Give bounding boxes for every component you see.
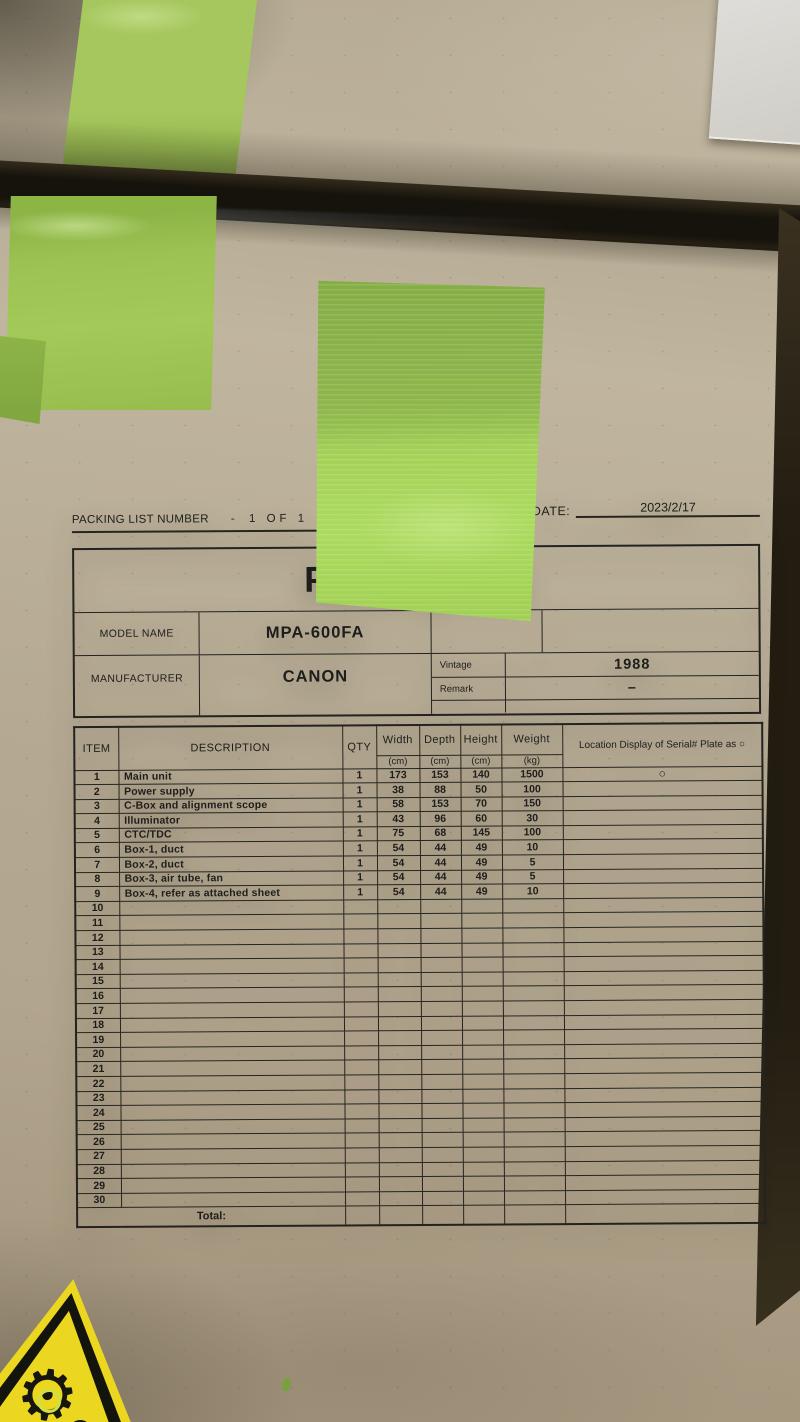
cell-depth: 44 [420, 855, 461, 870]
col-header-width: Width [376, 725, 419, 755]
cell-location [563, 780, 763, 796]
cell-width [378, 1074, 421, 1089]
header-row: ITEM DESCRIPTION QTY Width Depth Height … [74, 723, 762, 757]
col-header-location: Location Display of Serial# Plate as ○ [562, 723, 762, 767]
cell-location [564, 1072, 764, 1088]
cell-weight [502, 928, 563, 943]
cell-depth [421, 1074, 462, 1089]
unit-width: (cm) [376, 755, 419, 768]
remark-value: – [505, 676, 759, 700]
cell-location [565, 1131, 765, 1147]
cell-weight [503, 1103, 564, 1118]
cell-description: Box-2, duct [119, 856, 343, 872]
cell-width [377, 943, 420, 958]
cell-height [462, 1103, 503, 1118]
vintage-value: 1988 [505, 652, 759, 677]
cell-depth [421, 1016, 462, 1031]
cell-location [563, 868, 763, 884]
cell-item: 13 [75, 945, 119, 960]
cell-depth [421, 987, 462, 1002]
cell-depth [422, 1133, 463, 1148]
cell-depth [422, 1191, 463, 1206]
cell-width: 54 [377, 856, 420, 871]
cell-item: 19 [76, 1033, 120, 1048]
cell-depth [420, 943, 461, 958]
cell-location [563, 941, 763, 957]
cell-item: 4 [75, 814, 119, 829]
cell-qty: 1 [343, 827, 377, 842]
total-qty-cell [345, 1206, 379, 1225]
cell-qty: 1 [343, 856, 377, 871]
cell-item: 12 [75, 930, 119, 945]
manufacturer-label: MANUFACTURER [91, 655, 184, 701]
cell-item: 11 [75, 916, 119, 931]
cell-weight: 5 [502, 869, 563, 884]
cell-weight [504, 1132, 565, 1147]
cell-qty [344, 1016, 378, 1031]
cell-width: 54 [377, 885, 420, 900]
empty-row [432, 698, 759, 713]
cell-item: 1 [74, 770, 118, 785]
cell-height [461, 899, 502, 914]
cell-qty [345, 1177, 379, 1192]
cell-item: 21 [76, 1062, 120, 1077]
cell-weight: 10 [502, 840, 563, 855]
cell-depth [421, 1030, 462, 1045]
empty-cell [505, 699, 759, 713]
cell-qty: 1 [343, 870, 377, 885]
col-header-description: DESCRIPTION [118, 725, 342, 769]
cell-depth [421, 972, 462, 987]
cell-width: 38 [377, 783, 420, 798]
cell-weight [502, 913, 563, 928]
cell-description: C-Box and alignment scope [119, 798, 343, 814]
cell-description [120, 1017, 344, 1033]
cell-description [120, 1090, 344, 1106]
cell-location [563, 795, 763, 811]
cell-item: 29 [77, 1178, 121, 1193]
cell-depth: 44 [420, 841, 461, 856]
cell-item: 10 [75, 901, 119, 916]
cell-depth [422, 1118, 463, 1133]
cell-height [463, 1191, 504, 1206]
cell-height: 49 [461, 884, 502, 899]
cell-qty [344, 1089, 378, 1104]
cell-item: 23 [76, 1091, 120, 1106]
cell-item: 27 [77, 1149, 121, 1164]
cell-location [564, 956, 764, 972]
cell-item: 22 [76, 1076, 120, 1091]
cell-weight [503, 1015, 564, 1030]
vintage-row: Vintage 1988 [432, 652, 759, 677]
cell-qty: 1 [343, 797, 377, 812]
cell-weight [503, 1088, 564, 1103]
cell-location: ○ [562, 766, 762, 782]
cell-height [462, 1089, 503, 1104]
cell-depth [420, 899, 461, 914]
packing-list-number-label: PACKING LIST NUMBER [72, 513, 209, 526]
cell-weight [504, 1117, 565, 1132]
items-table: ITEM DESCRIPTION QTY Width Depth Height … [73, 722, 766, 1228]
cell-item: 5 [75, 828, 119, 843]
empty-cell [542, 609, 759, 652]
total-depth-cell [422, 1206, 463, 1225]
cell-location [563, 853, 763, 869]
cell-description [119, 929, 343, 945]
cell-qty [345, 1148, 379, 1163]
cell-height: 140 [460, 767, 501, 782]
cell-location [563, 912, 763, 928]
cell-height [463, 1132, 504, 1147]
green-tape-center [316, 279, 552, 623]
cell-description [119, 944, 343, 960]
cell-item: 6 [75, 843, 119, 858]
manufacturer-value: CANON [283, 654, 349, 700]
cell-width [379, 1118, 422, 1133]
cell-item: 24 [76, 1105, 120, 1120]
cell-width [378, 1060, 421, 1075]
items-body: 1Main unit11731531401500○2Power supply13… [74, 766, 765, 1208]
cell-height [462, 1074, 503, 1089]
cell-location [563, 824, 763, 840]
cell-width [379, 1162, 422, 1177]
cell-qty: 1 [343, 812, 377, 827]
cell-height [463, 1162, 504, 1177]
cell-weight: 5 [502, 855, 563, 870]
cell-height [462, 972, 503, 987]
cell-depth [421, 1089, 462, 1104]
cell-height: 60 [461, 811, 502, 826]
cell-qty [344, 1060, 378, 1075]
model-name-label: MODEL NAME [74, 612, 199, 655]
cell-description [121, 1192, 345, 1208]
cell-description [120, 1075, 344, 1091]
cell-width [379, 1191, 422, 1206]
col-header-height: Height [460, 724, 501, 754]
cell-height [463, 1176, 504, 1191]
cell-width [377, 929, 420, 944]
cell-weight [504, 1176, 565, 1191]
cell-depth [421, 1001, 462, 1016]
cell-depth [422, 1176, 463, 1191]
cell-qty [343, 943, 377, 958]
cell-qty [344, 1104, 378, 1119]
total-weight-cell [504, 1205, 565, 1224]
cell-width [379, 1147, 422, 1162]
cell-description: Box-3, air tube, fan [119, 871, 343, 887]
cell-item: 20 [76, 1047, 120, 1062]
cell-qty [343, 914, 377, 929]
cell-weight: 100 [502, 825, 563, 840]
cell-qty: 1 [343, 783, 377, 798]
cell-location [565, 1189, 765, 1205]
cell-weight [504, 1147, 565, 1162]
cell-description [120, 987, 344, 1003]
cell-location [564, 1058, 764, 1074]
cell-height [462, 957, 503, 972]
cell-qty [343, 929, 377, 944]
total-height-cell [463, 1205, 504, 1224]
cell-qty [345, 1191, 379, 1206]
cell-location [563, 810, 763, 826]
vintage-remark-block: Vintage 1988 Remark – [431, 652, 759, 714]
cell-width: 54 [377, 870, 420, 885]
cell-depth [420, 928, 461, 943]
cell-depth [420, 914, 461, 929]
cell-depth [421, 957, 462, 972]
cell-qty: 1 [342, 768, 376, 783]
cell-depth: 96 [420, 812, 461, 827]
cell-description [120, 1104, 344, 1120]
page-info: 1 OF 1 [249, 513, 308, 525]
cell-width [379, 1133, 422, 1148]
cell-depth: 153 [419, 768, 460, 783]
cell-location [564, 1087, 764, 1103]
empty-cell [432, 700, 505, 713]
cell-width [377, 899, 420, 914]
cell-description [121, 1177, 345, 1193]
remark-label: Remark [432, 677, 505, 699]
cell-width [379, 1177, 422, 1192]
cell-height [463, 1118, 504, 1133]
cell-width: 43 [377, 812, 420, 827]
items-table-foot: Total: [77, 1204, 765, 1227]
cell-location [564, 1014, 764, 1030]
cell-item: 2 [75, 784, 119, 799]
cell-description: Power supply [119, 783, 343, 799]
cell-description [121, 1162, 345, 1178]
cell-item: 16 [76, 989, 120, 1004]
date-group: DATE: 2023/2/17 [532, 500, 760, 518]
cell-width [378, 1045, 421, 1060]
cell-weight [503, 1030, 564, 1045]
green-tape-corner-piece [0, 336, 46, 424]
cell-width: 75 [377, 826, 420, 841]
cell-weight [503, 1001, 564, 1016]
cell-location [565, 1160, 765, 1176]
cell-location [563, 839, 763, 855]
cell-height [462, 986, 503, 1001]
cell-qty [344, 973, 378, 988]
cell-weight [503, 1074, 564, 1089]
cell-height: 49 [461, 840, 502, 855]
cell-qty [344, 987, 378, 1002]
cell-depth [422, 1147, 463, 1162]
col-header-qty: QTY [342, 725, 376, 768]
cell-description [120, 1002, 344, 1018]
total-label: Total: [77, 1206, 345, 1227]
cell-height [463, 1147, 504, 1162]
cell-width [378, 1016, 421, 1031]
cell-description: Illuminator [119, 812, 343, 828]
cell-location [564, 970, 764, 986]
cell-item: 7 [75, 857, 119, 872]
items-table-head: ITEM DESCRIPTION QTY Width Depth Height … [74, 723, 762, 770]
cell-description [120, 1031, 344, 1047]
cell-location [564, 999, 764, 1015]
cell-description: Box-1, duct [119, 841, 343, 857]
cell-item: 14 [76, 960, 120, 975]
cell-qty [345, 1133, 379, 1148]
cell-width [378, 1031, 421, 1046]
gear-icon: ⚙ [0, 1405, 10, 1422]
cell-item: 9 [75, 887, 119, 902]
cell-height [462, 1045, 503, 1060]
cell-item: 3 [75, 799, 119, 814]
date-label: DATE: [532, 504, 570, 518]
cell-item: 26 [77, 1135, 121, 1150]
cell-height [461, 928, 502, 943]
packing-list-number-group: PACKING LIST NUMBER - 1 OF 1 [72, 513, 324, 534]
cell-width [378, 972, 421, 987]
cell-width [378, 1104, 421, 1119]
cell-height: 145 [461, 826, 502, 841]
cell-weight: 1500 [501, 767, 562, 782]
cell-depth [421, 1060, 462, 1075]
cell-location [563, 897, 763, 913]
cell-width: 58 [377, 797, 420, 812]
cell-description [120, 973, 344, 989]
cell-weight: 10 [502, 884, 563, 899]
date-value: 2023/2/17 [576, 500, 760, 518]
cell-height [462, 1030, 503, 1045]
model-name-value: MPA-600FA [199, 611, 431, 654]
cell-qty [345, 1162, 379, 1177]
cell-location [564, 1029, 764, 1045]
cell-depth [421, 1103, 462, 1118]
cell-weight: 100 [502, 782, 563, 797]
cell-weight: 30 [502, 811, 563, 826]
cell-item: 25 [77, 1120, 121, 1135]
cell-weight: 150 [502, 796, 563, 811]
cell-item: 8 [75, 872, 119, 887]
cell-description [121, 1148, 345, 1164]
cell-weight [503, 986, 564, 1001]
cell-location [565, 1116, 765, 1132]
unit-height: (cm) [460, 754, 501, 767]
cell-description [119, 914, 343, 930]
manufacturer-label-cell: MANUFACTURER [75, 655, 200, 716]
cell-height: 49 [461, 870, 502, 885]
unit-weight: (kg) [501, 754, 562, 767]
cell-description: Box-4, refer as attached sheet [119, 885, 343, 901]
cell-qty [344, 1046, 378, 1061]
cell-location [564, 985, 764, 1001]
cell-height: 70 [461, 797, 502, 812]
cell-height [461, 943, 502, 958]
cell-description [121, 1133, 345, 1149]
cell-depth [422, 1162, 463, 1177]
cell-qty: 1 [343, 841, 377, 856]
manufacturer-row: MANUFACTURER CANON Vintage 1988 Remar [75, 651, 759, 716]
cell-description: CTC/TDC [119, 827, 343, 843]
number-separator: - [231, 513, 235, 525]
cell-qty [344, 1075, 378, 1090]
cell-weight [502, 898, 563, 913]
cell-description [120, 958, 344, 974]
cell-depth: 44 [420, 884, 461, 899]
cell-description [121, 1119, 345, 1135]
total-row: Total: [77, 1204, 765, 1227]
total-width-cell [379, 1206, 422, 1225]
vintage-label: Vintage [432, 653, 505, 676]
cell-height [462, 1059, 503, 1074]
manufacturer-value-cell: CANON [199, 654, 431, 715]
cell-height: 50 [461, 782, 502, 797]
cell-weight [503, 1044, 564, 1059]
cell-location [565, 1145, 765, 1161]
cell-width [378, 1089, 421, 1104]
cell-location [564, 1043, 764, 1059]
cell-depth [421, 1045, 462, 1060]
cell-depth: 44 [420, 870, 461, 885]
cell-location [564, 1102, 764, 1118]
col-header-item: ITEM [74, 727, 118, 770]
white-card [709, 0, 800, 145]
cell-qty [345, 1118, 379, 1133]
cell-qty [344, 1031, 378, 1046]
cell-description [120, 1046, 344, 1062]
cell-qty [344, 958, 378, 973]
unit-depth: (cm) [419, 755, 460, 768]
cell-width: 173 [376, 768, 419, 783]
cell-width [378, 1001, 421, 1016]
cell-weight [503, 971, 564, 986]
cell-depth: 153 [420, 797, 461, 812]
cell-height: 49 [461, 855, 502, 870]
cell-depth: 88 [420, 782, 461, 797]
cell-height [461, 913, 502, 928]
cell-weight [503, 1059, 564, 1074]
cell-qty: 1 [343, 885, 377, 900]
cell-qty [344, 1002, 378, 1017]
cell-weight [504, 1190, 565, 1205]
col-header-weight: Weight [501, 724, 562, 754]
remark-row: Remark – [432, 675, 759, 700]
cell-item: 30 [77, 1193, 121, 1208]
cell-item: 28 [77, 1164, 121, 1179]
cell-description [119, 900, 343, 916]
col-header-depth: Depth [419, 725, 460, 755]
cell-height [462, 1001, 503, 1016]
cell-description: Main unit [118, 768, 342, 784]
model-name-row: MODEL NAME MPA-600FA [74, 608, 758, 655]
cell-width [378, 958, 421, 973]
photo-scene: PACKING LIST NUMBER - 1 OF 1 DATE: 2023/… [0, 0, 800, 1422]
cell-weight [504, 1161, 565, 1176]
cell-description [120, 1060, 344, 1076]
cell-width [377, 914, 420, 929]
cell-height [462, 1016, 503, 1031]
cell-location [565, 1175, 765, 1191]
cell-depth: 68 [420, 826, 461, 841]
total-location-cell [565, 1204, 765, 1224]
cell-weight [503, 957, 564, 972]
cell-width: 54 [377, 841, 420, 856]
cell-width [378, 987, 421, 1002]
cell-location [563, 926, 763, 942]
cell-item: 17 [76, 1003, 120, 1018]
cell-location [563, 883, 763, 899]
cell-item: 18 [76, 1018, 120, 1033]
cell-weight [502, 942, 563, 957]
cell-item: 15 [76, 974, 120, 989]
cell-qty [343, 900, 377, 915]
